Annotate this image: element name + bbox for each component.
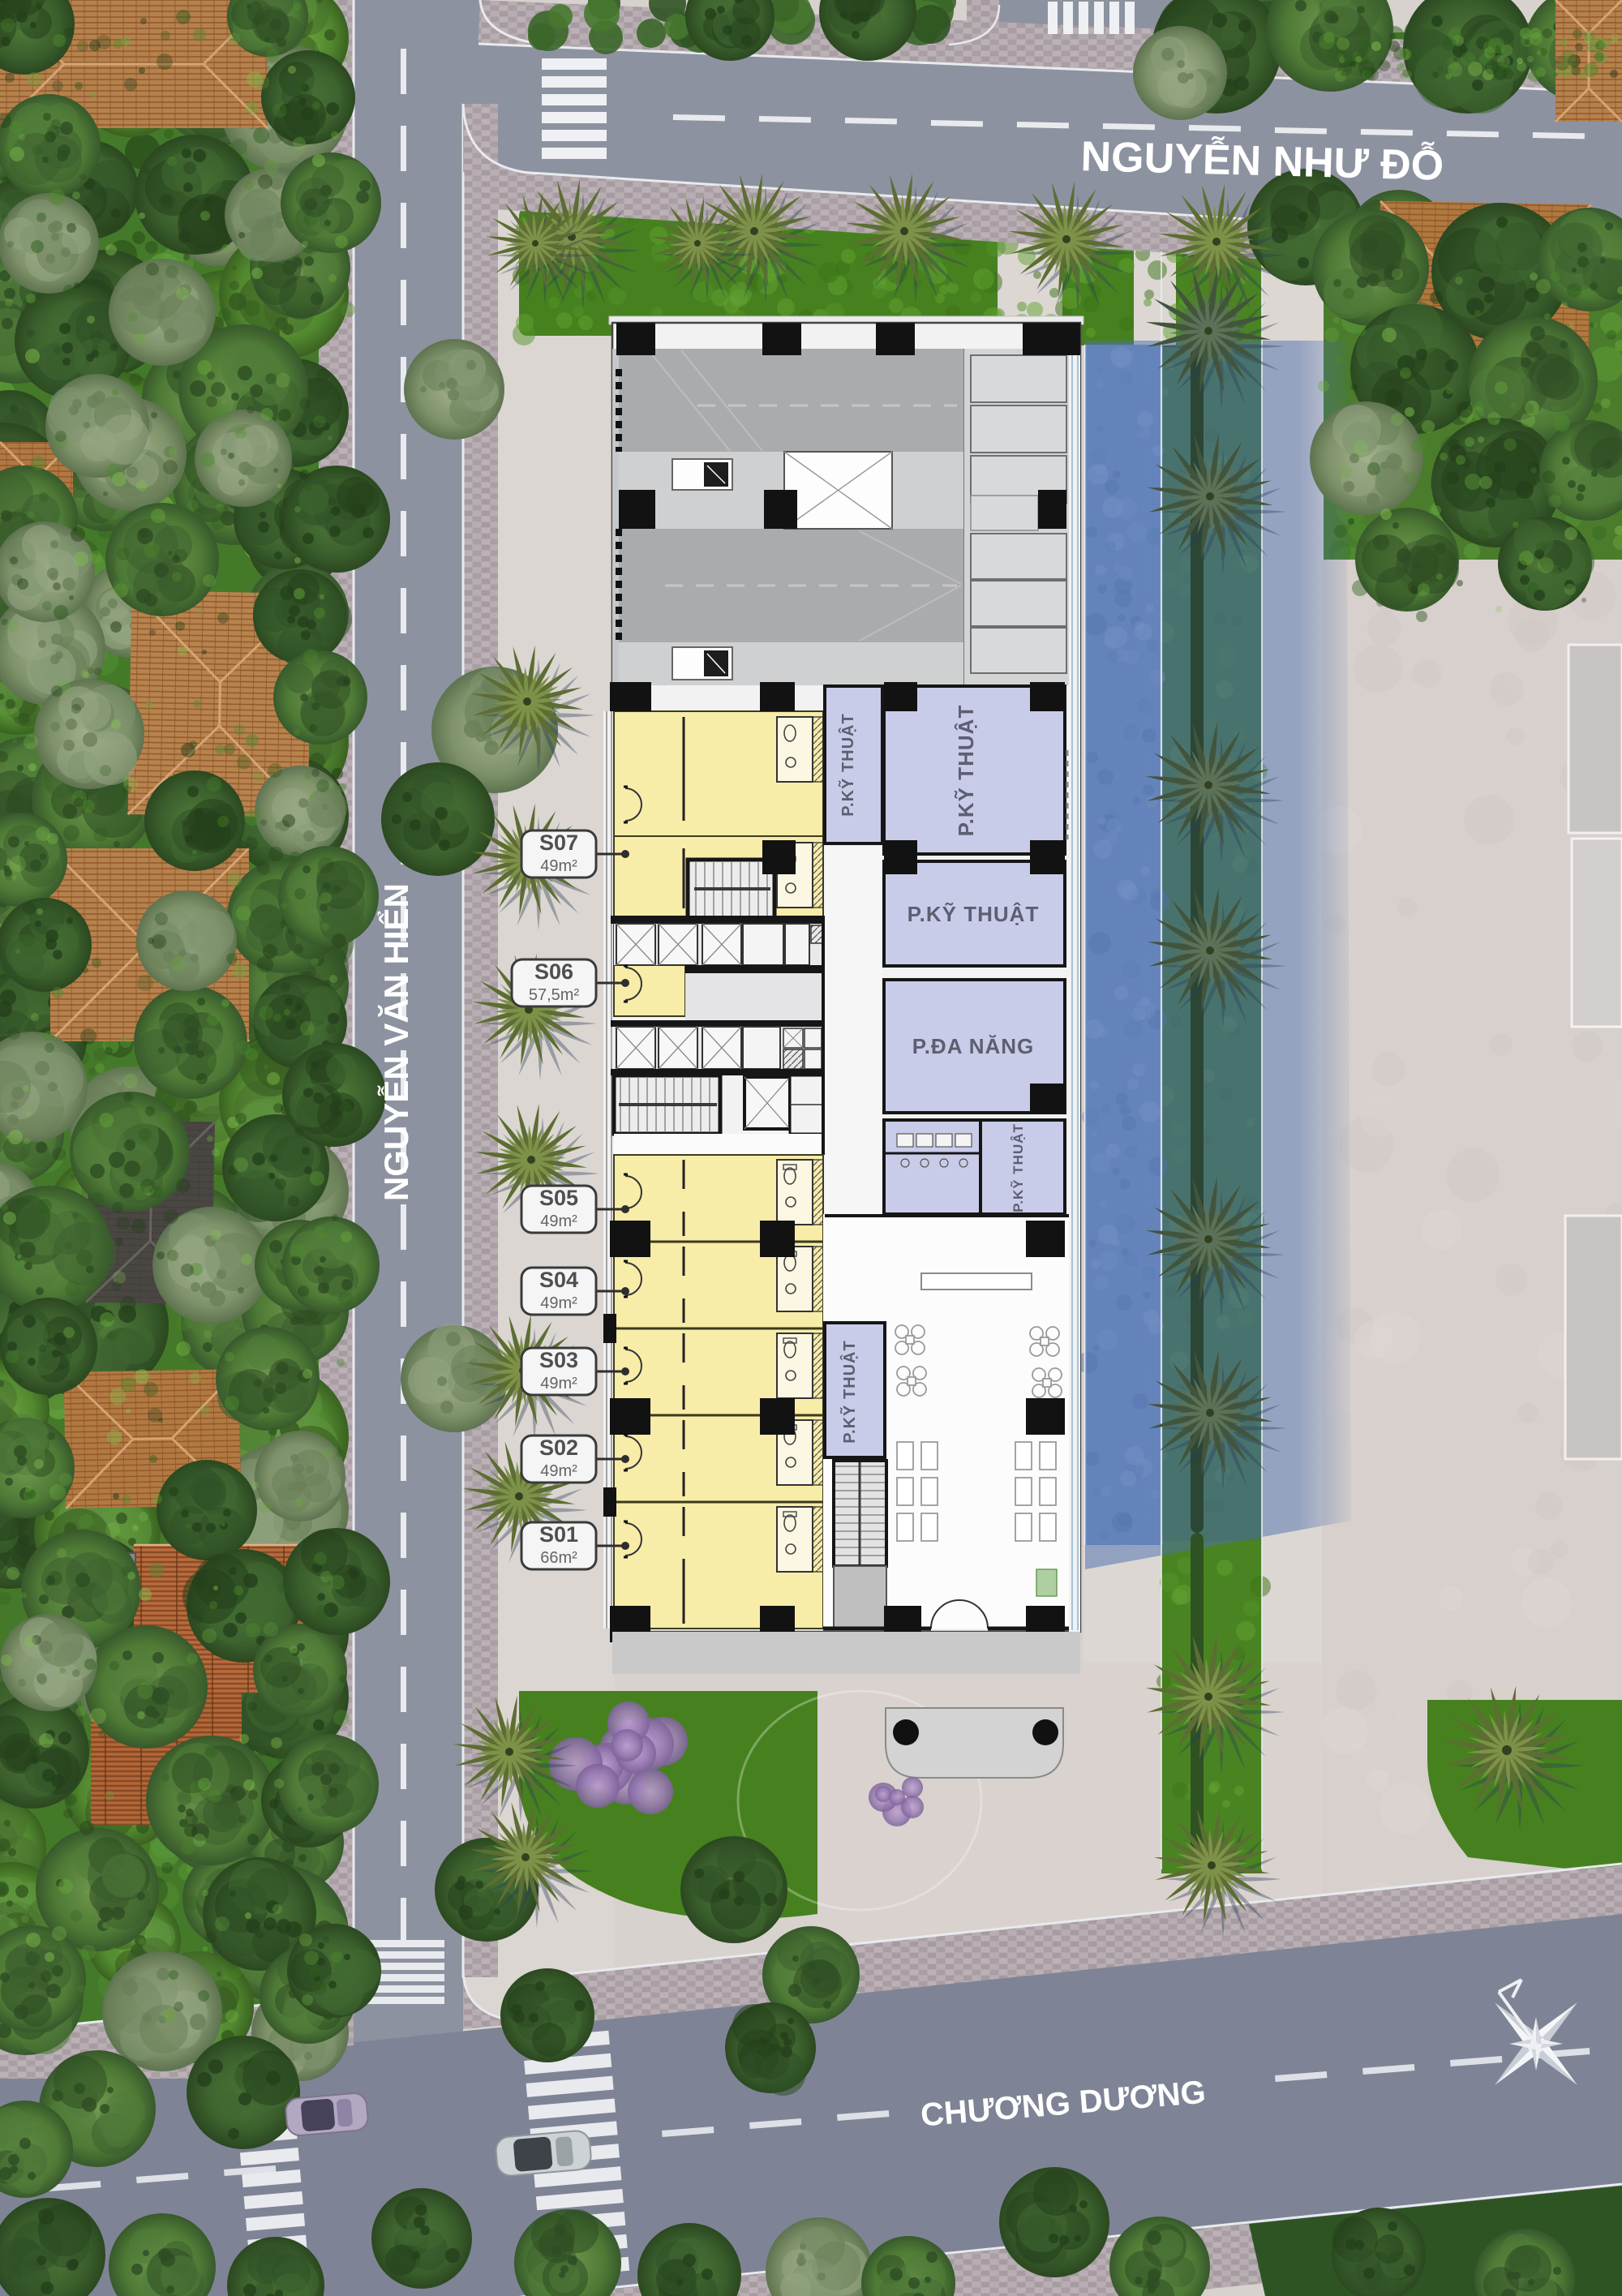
svg-text:49m²: 49m² xyxy=(540,1294,577,1312)
svg-text:S05: S05 xyxy=(539,1186,578,1210)
svg-text:P.KỸ THUẬT: P.KỸ THUẬT xyxy=(954,705,978,837)
svg-text:57,5m²: 57,5m² xyxy=(529,986,580,1004)
svg-text:P.KỸ THUẬT: P.KỸ THUẬT xyxy=(1010,1123,1026,1212)
svg-text:S06: S06 xyxy=(534,959,573,984)
svg-text:49m²: 49m² xyxy=(540,1462,577,1480)
svg-text:NGUYỄN NHƯ ĐỖ: NGUYỄN NHƯ ĐỖ xyxy=(1080,132,1444,190)
svg-text:S04: S04 xyxy=(539,1268,578,1292)
svg-text:66m²: 66m² xyxy=(540,1549,577,1567)
svg-text:P.ĐA NĂNG: P.ĐA NĂNG xyxy=(912,1034,1035,1058)
svg-text:S02: S02 xyxy=(539,1436,578,1460)
svg-text:P.KỸ THUẬT: P.KỸ THUẬT xyxy=(838,713,857,816)
svg-text:49m²: 49m² xyxy=(540,1375,577,1393)
svg-text:S07: S07 xyxy=(539,830,578,855)
svg-text:S01: S01 xyxy=(539,1522,578,1547)
svg-text:NGUYỄN VĂN HIỂN: NGUYỄN VĂN HIỂN xyxy=(376,883,415,1201)
svg-text:49m²: 49m² xyxy=(540,1212,577,1230)
svg-text:49m²: 49m² xyxy=(540,857,577,875)
svg-text:P.KỸ THUẬT: P.KỸ THUẬT xyxy=(839,1340,859,1443)
svg-text:S03: S03 xyxy=(539,1348,578,1372)
svg-text:P.KỸ THUẬT: P.KỸ THUẬT xyxy=(908,902,1040,926)
